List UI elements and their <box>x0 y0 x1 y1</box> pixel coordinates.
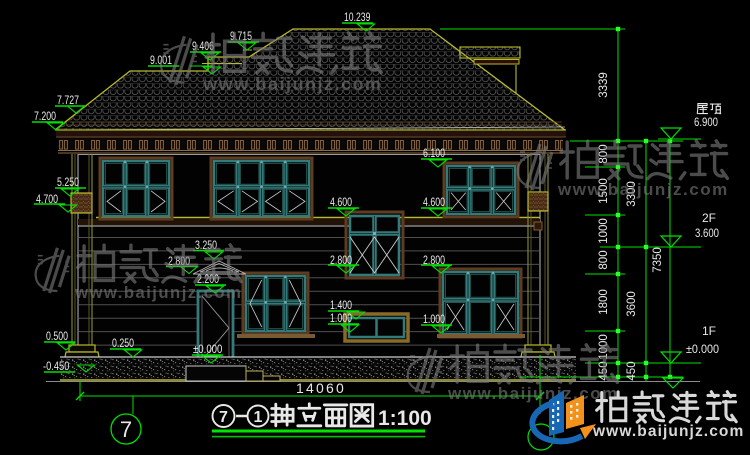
svg-text:1800: 1800 <box>598 289 610 315</box>
svg-text:0.500: 0.500 <box>46 331 68 343</box>
svg-text:0.250: 0.250 <box>112 338 134 350</box>
svg-text:1: 1 <box>254 409 263 426</box>
svg-text:1.000: 1.000 <box>423 314 445 326</box>
svg-text:www.baijunjz.com: www.baijunjz.com <box>557 180 729 199</box>
svg-text:1:100: 1:100 <box>378 407 432 430</box>
svg-text:1.000: 1.000 <box>330 313 352 325</box>
svg-text:-0.450: -0.450 <box>43 361 69 373</box>
svg-text:www.baijunjz.com: www.baijunjz.com <box>447 384 619 403</box>
svg-text:10.239: 10.239 <box>344 12 370 24</box>
svg-text:3600: 3600 <box>626 291 638 317</box>
svg-text:2F: 2F <box>702 211 716 225</box>
svg-text:14060: 14060 <box>296 380 346 396</box>
svg-text:±0.000: ±0.000 <box>193 344 222 356</box>
svg-text:www.baijunjz.com: www.baijunjz.com <box>74 283 242 302</box>
svg-text:±0.000: ±0.000 <box>686 344 719 356</box>
svg-text:6.100: 6.100 <box>423 148 445 160</box>
svg-text:1000: 1000 <box>598 218 610 244</box>
svg-text:5.250: 5.250 <box>57 177 79 189</box>
svg-text:7350: 7350 <box>652 247 664 273</box>
svg-text:450: 450 <box>626 361 638 380</box>
svg-text:4.600: 4.600 <box>423 197 445 209</box>
svg-text:3.600: 3.600 <box>695 228 719 240</box>
svg-text:7.200: 7.200 <box>34 111 56 123</box>
svg-text:www.baijunjz.com: www.baijunjz.com <box>592 423 744 440</box>
svg-text:3339: 3339 <box>598 72 610 98</box>
svg-text:1.400: 1.400 <box>330 300 352 312</box>
svg-text:7: 7 <box>219 409 228 426</box>
svg-text:7: 7 <box>120 417 132 442</box>
svg-text:6.900: 6.900 <box>694 117 718 129</box>
svg-text:1F: 1F <box>702 324 716 338</box>
svg-text:800: 800 <box>598 250 610 269</box>
svg-text:7.727: 7.727 <box>57 95 79 107</box>
svg-text:www.baijunjz.com: www.baijunjz.com <box>202 74 382 94</box>
svg-text:4.600: 4.600 <box>330 197 352 209</box>
